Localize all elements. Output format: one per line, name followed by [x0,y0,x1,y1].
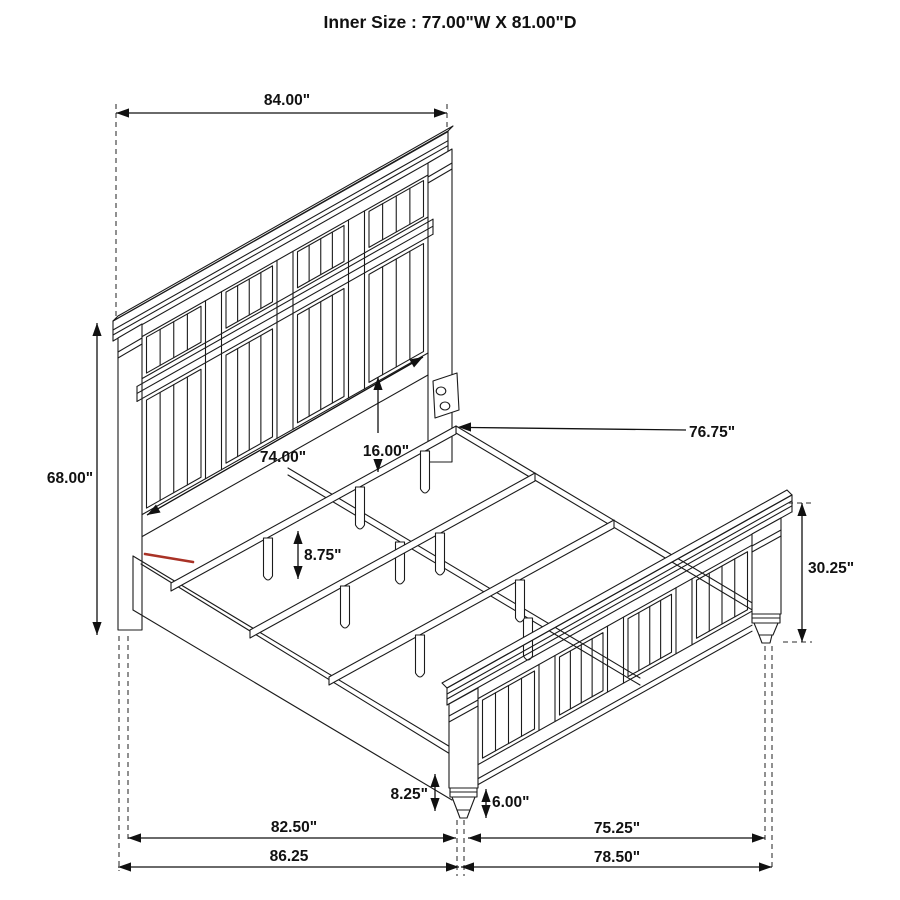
red-rail-hook-accent [145,554,193,562]
dim-label-bottom-outer-left: 86.25 [270,848,309,865]
dim-label-bottom-inner-right: 75.25" [594,820,640,837]
dim-label-foot-post-height: 8.25" [390,786,428,803]
dim-label-inner-width: 74.00" [260,449,306,466]
dim-label-bottom-outer-right: 78.50" [594,849,640,866]
turned-feet [450,614,780,818]
dim-label-support-leg-height: 8.75" [304,547,342,564]
inner-size-title: Inner Size : 77.00"W X 81.00"D [324,12,577,32]
dim-label-top-width: 84.00" [264,92,310,109]
dim-label-left-height: 68.00" [47,470,93,487]
rail-bracket [433,373,459,418]
footboard [442,490,792,788]
page: Inner Size : 77.00"W X 81.00"D 84.00" 68… [0,0,900,900]
bracket-hole [436,387,446,395]
dim-label-foot-height: 6.00" [492,794,530,811]
dim-label-rail-length: 76.75" [689,424,735,441]
bed-dimension-diagram: Inner Size : 77.00"W X 81.00"D 84.00" 68… [0,0,900,900]
dim-label-slat-offset: 16.00" [363,443,409,460]
bracket-hole [440,402,450,410]
dim-label-footboard-height: 30.25" [808,560,854,577]
dim-label-bottom-inner-left: 82.50" [271,819,317,836]
